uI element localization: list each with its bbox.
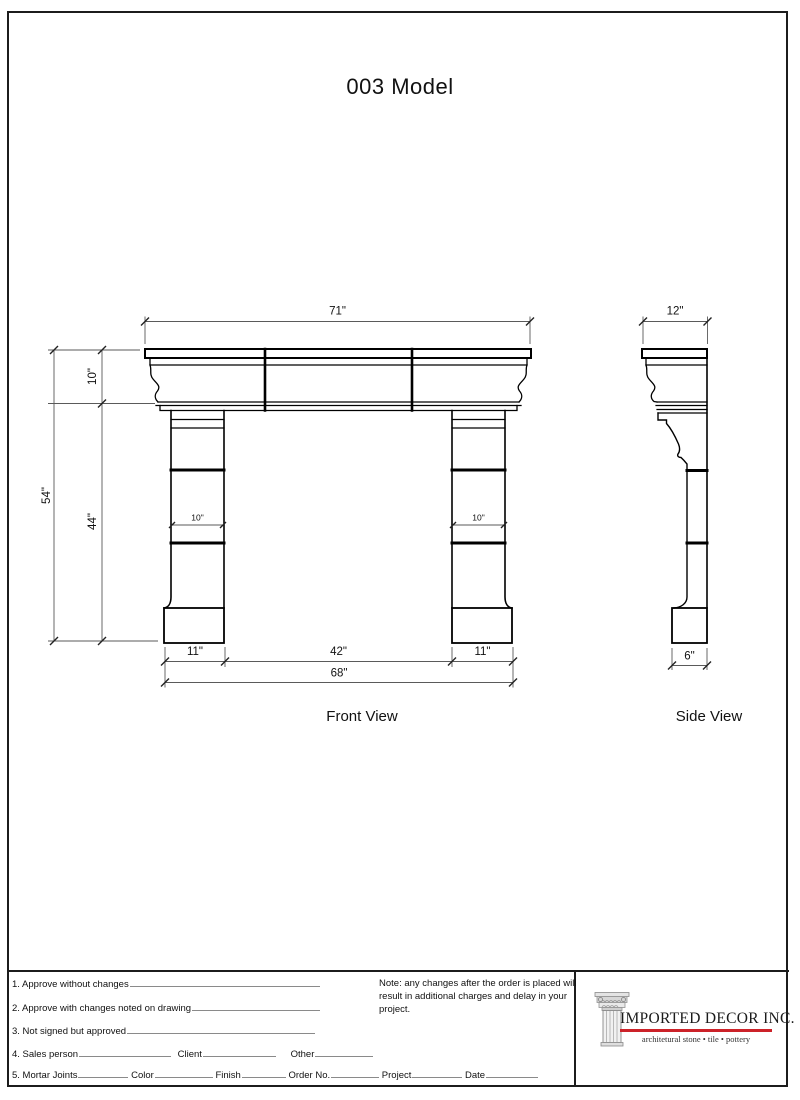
front-view-drawing (145, 349, 531, 643)
form-row-2-label: 2. Approve with changes noted on drawing (12, 1003, 191, 1014)
signature-line (192, 1001, 320, 1011)
logo-red-rule (620, 1029, 772, 1032)
order-change-note: Note: any changes after the order is pla… (379, 977, 579, 1016)
side-dim-12-label: 12" (667, 306, 684, 318)
color-label: Color (131, 1070, 154, 1081)
company-tagline: architetural stone • tile • pottery (620, 1034, 772, 1044)
form-row-2: 2. Approve with changes noted on drawing (12, 1001, 320, 1014)
mortar-joints-label: 5. Mortar Joints (12, 1070, 77, 1081)
sales-person-label: 4. Sales person (12, 1049, 78, 1060)
company-name: IMPORTED DECOR INC. (620, 1010, 772, 1028)
front-dim-44-label: 44" (87, 513, 99, 530)
front-dim-right-leg-10-label: 10" (472, 513, 484, 523)
side-view-caption: Side View (676, 708, 743, 725)
color-line (155, 1068, 213, 1078)
other-line (315, 1047, 373, 1057)
date-line (486, 1068, 538, 1078)
client-label: Client (178, 1049, 202, 1060)
front-dim-54-label: 54" (41, 487, 53, 504)
date-label: Date (465, 1070, 485, 1081)
front-dim-left-leg-10-label: 10" (191, 513, 203, 523)
front-dim-42-label: 42" (330, 646, 347, 658)
dimension-lines (48, 317, 708, 688)
form-row-3: 3. Not signed but approved (12, 1024, 315, 1037)
front-view-caption: Front View (326, 708, 398, 725)
side-dim-6-label: 6" (684, 651, 694, 663)
front-dim-68-label: 68" (331, 668, 348, 680)
form-row-1-label: 1. Approve without changes (12, 979, 129, 990)
project-line (412, 1068, 462, 1078)
company-logo-block: IMPORTED DECOR INC. architetural stone •… (575, 971, 790, 1088)
dimension-ticks (50, 318, 712, 687)
order-no-line (331, 1068, 379, 1078)
front-dim-11-right-label: 11" (474, 646, 490, 658)
mantel-technical-drawing: 71" 54" 10" 44" 10" 10" 11" 42" 11" 68" … (0, 0, 800, 1100)
form-row-1: 1. Approve without changes (12, 977, 320, 990)
form-row-4: 4. Sales person Client Other (12, 1047, 373, 1060)
drawing-sheet: 003 Model (0, 0, 800, 1100)
side-view-drawing (642, 349, 707, 643)
form-row-3-label: 3. Not signed but approved (12, 1026, 126, 1037)
finish-label: Finish (215, 1070, 240, 1081)
front-dim-11-left-label: 11" (187, 646, 203, 658)
front-dim-71-label: 71" (329, 306, 346, 318)
form-row-5: 5. Mortar Joints Color Finish Order No. … (12, 1068, 538, 1081)
sales-person-line (79, 1047, 171, 1057)
other-label: Other (291, 1049, 315, 1060)
signature-line (130, 977, 320, 987)
client-line (203, 1047, 276, 1057)
project-label: Project (382, 1070, 412, 1081)
order-no-label: Order No. (288, 1070, 330, 1081)
mortar-joints-line (78, 1068, 128, 1078)
finish-line (242, 1068, 286, 1078)
front-dim-10-shelf-label: 10" (87, 368, 99, 385)
logo-text: IMPORTED DECOR INC. architetural stone •… (620, 1010, 772, 1044)
signature-line (127, 1024, 315, 1034)
